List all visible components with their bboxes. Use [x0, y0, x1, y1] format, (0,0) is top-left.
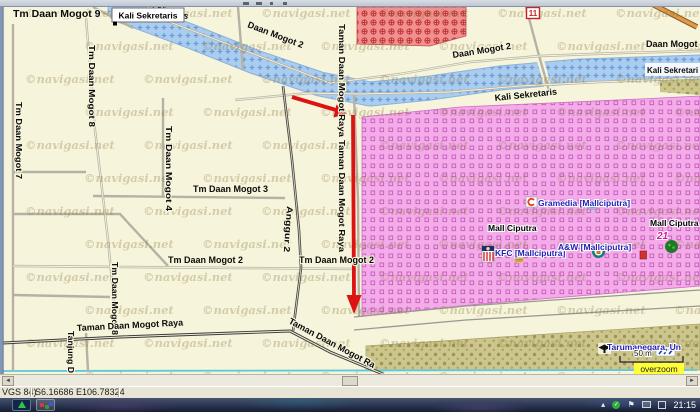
route-shield-11: 11 [527, 8, 540, 19]
road-label-taman-daan-mogot-raya-vert-b: Taman Daan Mogot Raya [337, 140, 346, 253]
red-poi-icon[interactable] [640, 251, 647, 259]
watermark-text: ©navigasi.net [320, 105, 410, 119]
hover-point-marker [113, 22, 117, 26]
watermark-text: ©navigasi.net [25, 72, 115, 86]
watermark-text: ©navigasi.net [320, 303, 410, 317]
poi-label-mall-ciputra-2[interactable]: Mall Ciputra [650, 218, 699, 228]
watermark-text: ©navigasi.net [143, 138, 233, 152]
overzoom-label: overzoom [640, 364, 677, 374]
watermark-text: ©navigasi.net [379, 7, 469, 20]
tooltip-text: Kali Sekretaris [118, 11, 177, 21]
road-label-daan-mogot-2-c: Daan Mogot 2 [646, 39, 700, 49]
watermark-text: ©navigasi.net [202, 171, 292, 185]
watermark-text: ©navigasi.net [143, 336, 233, 350]
removable-device-icon[interactable] [658, 401, 666, 409]
road-label-tanjung-d: Tanjung D [66, 331, 75, 373]
watermark-text: ©navigasi.net [438, 171, 528, 185]
road-label-tm-daan-mogot-9: Tm Daan Mogot 9 [13, 8, 101, 20]
watermark-text: ©navigasi.net [674, 171, 700, 185]
flag-icon[interactable]: ⚑ [628, 398, 635, 412]
scrollbar-thumb[interactable] [342, 376, 358, 386]
watermark-text: ©navigasi.net [84, 105, 174, 119]
map-canvas[interactable]: ©navigasi.net©navigasi.net©navigasi.net©… [0, 7, 700, 374]
road-label-tm-daan-mogot-8-upper: Tm Daan Mogot 8 [87, 45, 96, 128]
watermark-text: ©navigasi.net [556, 105, 646, 119]
watermark-text: ©navigasi.net [379, 204, 469, 218]
watermark-text: ©navigasi.net [615, 7, 700, 20]
toolbar-glyph [283, 2, 287, 5]
road-label-taman-daan-mogot-raya-vert-a: Taman Daan Mogot Raya [337, 24, 346, 138]
route-shield-number: 11 [529, 9, 538, 18]
app-icon-dot [40, 403, 44, 407]
road-label-tm-daan-mogot-7: Tm Daan Mogot 7 [14, 102, 23, 180]
watermark-text: ©navigasi.net [320, 39, 410, 53]
watermark-text: ©navigasi.net [556, 171, 646, 185]
app-icon-triangle [18, 401, 26, 408]
watermark-text: ©navigasi.net [556, 303, 646, 317]
application-window: ©navigasi.net©navigasi.net©navigasi.net©… [0, 0, 700, 412]
watermark-text: ©navigasi.net [497, 336, 587, 350]
network-icon[interactable] [642, 401, 651, 408]
app-icon-dot [49, 402, 53, 406]
toolbar-glyph [256, 2, 262, 5]
watermark-text: ©navigasi.net [261, 7, 351, 20]
watermark-text: ©navigasi.net [143, 204, 233, 218]
scroll-left-button[interactable]: ◄ [2, 376, 14, 386]
watermark-text: ©navigasi.net [202, 237, 292, 251]
taskbar-clock[interactable]: 21:15 [673, 398, 696, 412]
scale-distance: 50 m [634, 349, 652, 358]
watermark-text: ©navigasi.net [379, 270, 469, 284]
watermark-text: ©navigasi.net [261, 270, 351, 284]
watermark-text: ©navigasi.net [615, 138, 700, 152]
poi-label-kfc[interactable]: KFC [Mallciputra] [495, 248, 566, 258]
taskbar: ▴ ✓ ⚑ 21:15 [0, 398, 700, 412]
poi-label-cinema-21[interactable]: 21 [656, 231, 669, 242]
taskbar-app-mapsource[interactable] [12, 399, 31, 411]
gramedia-icon[interactable] [526, 197, 537, 207]
watermark-text: ©navigasi.net [674, 303, 700, 317]
poi-label-mall-ciputra-1[interactable]: Mall Ciputra [488, 223, 537, 233]
watermark-text: ©navigasi.net [25, 270, 115, 284]
watermark-text: ©navigasi.net [320, 171, 410, 185]
watermark-text: ©navigasi.net [143, 72, 233, 86]
coordinates-readout: S6.16686 E106.78324 [35, 387, 125, 398]
window-left-border [0, 7, 3, 374]
watermark-text: ©navigasi.net [438, 105, 528, 119]
watermark-text: ©navigasi.net [84, 303, 174, 317]
watermark-text: ©navigasi.net [25, 138, 115, 152]
tray-expand-icon[interactable]: ▴ [601, 398, 605, 412]
security-check-icon[interactable]: ✓ [612, 401, 620, 409]
watermark-text: ©navigasi.net [497, 7, 587, 20]
watermark-text: ©navigasi.net [379, 336, 469, 350]
status-bar: VGS 84) S6.16686 E106.78324 [0, 386, 700, 398]
kfc-icon[interactable] [482, 246, 494, 262]
statusbar-separator [30, 388, 32, 397]
watermark-text: ©navigasi.net [674, 105, 700, 119]
toolbar-glyph [243, 2, 249, 5]
statusbar-separator [118, 388, 120, 397]
scroll-right-button[interactable]: ► [686, 376, 698, 386]
watermark-text: ©navigasi.net [84, 39, 174, 53]
toolbar-glyph [270, 2, 273, 5]
watermark-text: ©navigasi.net [84, 171, 174, 185]
watermark-text: ©navigasi.net [497, 72, 587, 86]
watermark-text: ©navigasi.net [556, 39, 646, 53]
river-label-text: Kali Sekretari [647, 66, 698, 75]
watermark-text: ©navigasi.net [379, 72, 469, 86]
road-label-tm-daan-mogot-2-b: Tm Daan Mogot 2 [299, 255, 374, 265]
watermark-text: ©navigasi.net [202, 105, 292, 119]
road-label-tm-daan-mogot-3: Tm Daan Mogot 3 [193, 184, 268, 194]
poi-label-aw[interactable]: A&W [Mallciputra] [558, 242, 631, 252]
toolbar-strip [0, 0, 700, 7]
system-tray[interactable]: ▴ ✓ ⚑ 21:15 [596, 398, 696, 412]
poi-label-gramedia[interactable]: Gramedia [Mallciputra] [538, 198, 630, 208]
road-label-tm-daan-mogot-4: Tm Daan Mogot 4 [164, 126, 173, 212]
road-label-tm-daan-mogot-2-a: Tm Daan Mogot 2 [168, 255, 243, 265]
watermark-text: ©navigasi.net [379, 138, 469, 152]
river-label-box: Kali Sekretari [645, 63, 700, 76]
watermark-text: ©navigasi.net [438, 303, 528, 317]
watermark-text: ©navigasi.net [320, 237, 410, 251]
watermark-text: ©navigasi.net [143, 270, 233, 284]
watermark-text: ©navigasi.net [497, 270, 587, 284]
watermark-text: ©navigasi.net [25, 204, 115, 218]
watermark-text: ©navigasi.net [615, 270, 700, 284]
watermark-text: ©navigasi.net [84, 237, 174, 251]
horizontal-scrollbar[interactable]: ◄ ► [0, 374, 700, 386]
taskbar-app-2[interactable] [36, 399, 55, 411]
watermark-text: ©navigasi.net [674, 237, 700, 251]
watermark-text: ©navigasi.net [497, 138, 587, 152]
watermark-text: ©navigasi.net [202, 303, 292, 317]
